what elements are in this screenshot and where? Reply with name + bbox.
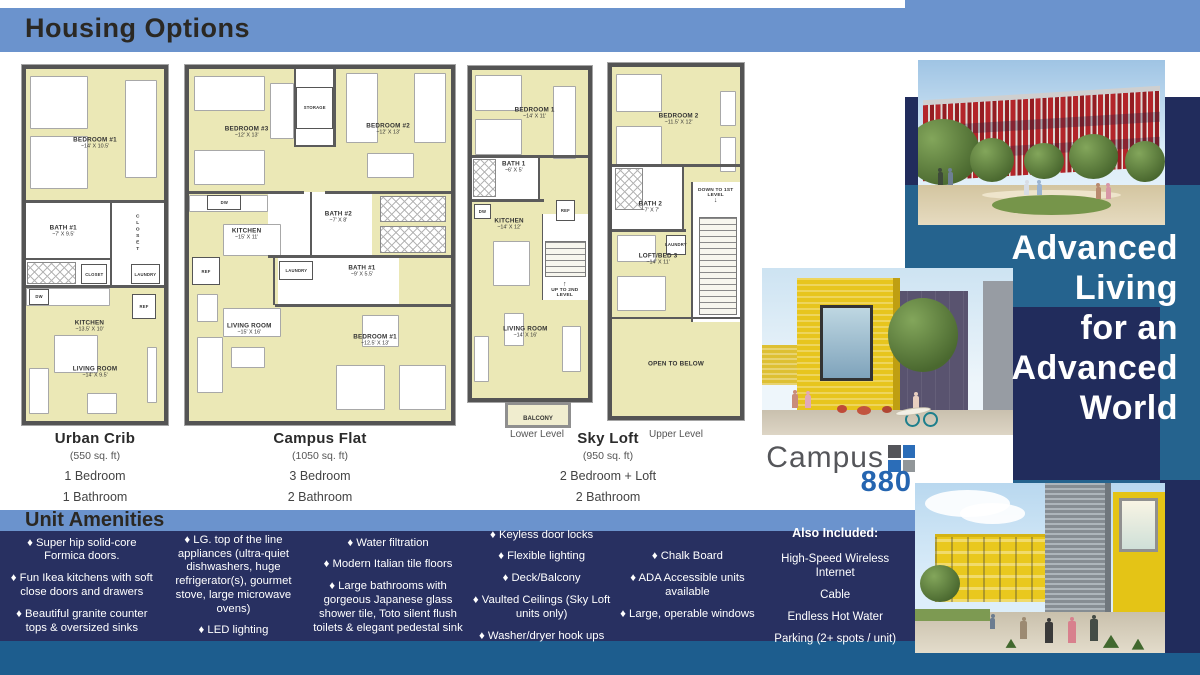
person <box>938 172 943 185</box>
level-label: Upper Level <box>649 429 703 440</box>
furniture <box>29 368 50 414</box>
room-name: OPEN TO BELOW <box>648 360 704 367</box>
person <box>1106 187 1111 199</box>
furniture <box>616 126 662 164</box>
furniture <box>616 74 662 112</box>
tree <box>1069 134 1118 179</box>
room-name: BEDROOM #1 <box>353 334 397 341</box>
amenity-item: ♦ Large, operable windows <box>618 608 756 622</box>
room-dimensions: ~14' X 10.5' <box>73 143 117 149</box>
plan-spec: 3 Bedroom <box>220 469 420 483</box>
amenity-item: ♦ Keyless door locks <box>471 529 613 543</box>
room-name: KITCHEN <box>494 218 523 225</box>
room-label: BEDROOM 2~11.5' X 12' <box>659 113 699 126</box>
room-dimensions: ~7' X 9.5' <box>50 231 77 237</box>
shower <box>27 262 75 284</box>
furniture <box>553 86 576 158</box>
photo-red-building <box>918 60 1165 225</box>
person <box>1024 184 1029 195</box>
room-label: KITCHEN~13.5' X 10' <box>75 319 104 332</box>
room-name: BEDROOM 1 <box>515 106 555 113</box>
room-label: KITCHEN~15' X 11' <box>232 228 261 241</box>
glass-window <box>820 305 874 381</box>
room-dimensions: ~15' X 11' <box>232 235 261 241</box>
plan-caption: Sky Loft(950 sq. ft)2 Bedroom + Loft2 Ba… <box>508 430 708 504</box>
room-name: KITCHEN <box>75 319 104 326</box>
right-edge-navy-block <box>1160 480 1200 653</box>
floor-plan-urban-crib: DWREFLAUNDRYCLOSETBEDROOM #1~14' X 10.5'… <box>22 65 168 425</box>
amenity-item: ♦ Large bathrooms with gorgeous Japanese… <box>311 580 464 635</box>
fixture-ref: REF <box>192 257 221 285</box>
room-dimensions: ~14' X 11' <box>515 113 555 119</box>
person <box>990 618 995 629</box>
wall <box>189 191 304 194</box>
furniture <box>30 76 88 129</box>
wall <box>275 304 451 307</box>
room-dimensions: ~14' X 9.5' <box>73 372 118 378</box>
logo-number: 880 <box>818 466 912 499</box>
room-label: OPEN TO BELOW <box>648 360 704 367</box>
amenity-item: ♦ LG. top of the line appliances (ultra-… <box>162 534 306 617</box>
fixture-laundry: LAUNDRY <box>279 261 313 280</box>
shower <box>380 196 446 223</box>
tagline-line: for an <box>910 308 1178 348</box>
room-name: BATH 1 <box>502 160 525 167</box>
room-dimensions: ~12.5' X 13' <box>353 341 397 347</box>
room-area <box>268 192 373 255</box>
amenity-item: ♦ Modern Italian tile floors <box>311 558 464 572</box>
fixture-dw: DW <box>207 195 241 211</box>
plan-spec: 1 Bedroom <box>0 469 195 483</box>
wall <box>273 256 276 305</box>
room-dimensions: ~11.5' X 12' <box>659 120 699 126</box>
wall <box>612 317 740 319</box>
fixture-laundry: LAUNDRY <box>131 264 160 283</box>
also-included-item: Parking (2+ spots / unit) <box>762 632 908 646</box>
plan-name: Campus Flat <box>220 430 420 447</box>
person <box>1096 187 1101 199</box>
also-included-title: Also Included: <box>762 526 908 541</box>
person <box>805 395 811 408</box>
page-title: Housing Options <box>25 13 250 44</box>
louver-tower <box>1045 483 1111 616</box>
tree <box>920 565 960 602</box>
stairs <box>699 217 737 315</box>
person <box>1020 621 1027 639</box>
wall <box>612 229 686 232</box>
room-dimensions: ~12' X 13' <box>225 133 269 139</box>
amenities-column: ♦ Super hip solid-core Formica doors.♦ F… <box>8 531 156 641</box>
room-label: BATH #1~7' X 9.5' <box>50 224 77 237</box>
plan-name: Urban Crib <box>0 430 195 447</box>
brochure-page: { "header": { "title": "Housing Options"… <box>0 0 1200 675</box>
right-white-patch <box>905 435 1013 483</box>
room-dimensions: ~7' X 7' <box>639 207 662 213</box>
photo-campus-walkway <box>915 483 1165 653</box>
amenity-item: ♦ Flexible lighting <box>471 550 613 564</box>
person <box>948 172 953 185</box>
amenities-column: ♦ Chalk Board♦ ADA Accessible units avai… <box>618 531 756 641</box>
tagline-line: World <box>910 388 1178 428</box>
room-name: KITCHEN <box>232 228 261 235</box>
room-dimensions: ~9' X 5.5' <box>348 272 375 278</box>
room-label: LIVING ROOM~14' X 9.5' <box>73 365 118 378</box>
room-label: LOFT/BED 3~14' X 11' <box>639 252 678 265</box>
plan-spec: 2 Bathroom <box>220 490 420 504</box>
room-label: BEDROOM #3~12' X 13' <box>225 126 269 139</box>
furniture <box>493 241 530 287</box>
tagline-line: Advanced <box>910 348 1178 388</box>
room-name: LIVING ROOM <box>227 323 272 330</box>
person <box>1045 622 1053 643</box>
amenity-item: ♦ Beautiful granite counter tops & overs… <box>8 608 156 636</box>
wall <box>325 191 451 194</box>
floor-plan-sky-loft-upper: LAUNDRYBEDROOM 2~11.5' X 12'BATH 2~7' X … <box>608 63 744 420</box>
room-label: BEDROOM #2~12' X 13' <box>366 122 410 135</box>
logo-square <box>888 445 901 458</box>
plan-spec: 1 Bathroom <box>0 490 195 504</box>
room-label: KITCHEN~14' X 12' <box>494 218 523 231</box>
floor-plan-campus-flat: STORAGEDWREFLAUNDRYBEDROOM #3~12' X 13'B… <box>185 65 455 425</box>
room-label: LIVING ROOM~14' X 16' <box>503 326 548 339</box>
amenity-item: ♦ Chalk Board <box>618 550 756 564</box>
amenities-column: ♦ LG. top of the line appliances (ultra-… <box>162 531 306 641</box>
furniture <box>336 365 386 411</box>
fixture-storage: STORAGE <box>296 87 333 129</box>
plan-caption: Campus Flat(1050 sq. ft)3 Bedroom2 Bathr… <box>220 430 420 504</box>
wall <box>26 285 164 288</box>
wall <box>682 166 684 229</box>
wall <box>472 199 544 202</box>
room-name: BATH #2 <box>325 210 352 217</box>
wall <box>691 182 692 322</box>
plan-caption: Urban Crib(550 sq. ft)1 Bedroom1 Bathroo… <box>0 430 195 504</box>
room-label: BEDROOM #1~12.5' X 13' <box>353 334 397 347</box>
room-dimensions: ~7' X 8' <box>325 217 352 223</box>
room-label: ↑UP TO 2ND LEVEL <box>547 282 583 298</box>
tagline-line: Advanced <box>910 228 1178 268</box>
amenity-item: ♦ LED lighting <box>162 624 306 638</box>
furniture <box>231 347 265 368</box>
room-dimensions: ~6' X 5' <box>502 167 525 173</box>
plan-spec: 2 Bedroom + Loft <box>508 469 708 483</box>
amenity-item: ♦ Deck/Balcony <box>471 572 613 586</box>
furniture <box>475 119 521 155</box>
room-dimensions: ~14' X 11' <box>639 259 678 265</box>
fixture-dw: DW <box>29 289 50 305</box>
wall <box>542 214 543 299</box>
person <box>792 394 798 408</box>
tree <box>970 138 1014 183</box>
plan-spec: 2 Bathroom <box>508 490 708 504</box>
wall <box>472 155 588 158</box>
lawn <box>915 609 990 621</box>
room-label: LIVING ROOM~15' X 16' <box>227 323 272 336</box>
room-name: BEDROOM #2 <box>366 122 410 129</box>
plan-sqft: (550 sq. ft) <box>0 450 195 462</box>
room-dimensions: ~14' X 12' <box>494 225 523 231</box>
room-name: BATH #1 <box>50 224 77 231</box>
room-label: BATH #2~7' X 8' <box>325 210 352 223</box>
furniture <box>474 336 489 382</box>
top-margin <box>0 0 905 8</box>
furniture <box>87 393 117 414</box>
room-name: LOFT/BED 3 <box>639 252 678 259</box>
furniture <box>399 365 446 411</box>
room-name: UP TO 2ND LEVEL <box>547 288 583 298</box>
furniture <box>197 294 218 322</box>
room-label: DOWN TO 1ST LEVEL↓ <box>698 188 734 204</box>
also-included-item: Cable <box>762 588 908 602</box>
cloud <box>960 503 1025 523</box>
amenity-item: ♦ Vaulted Ceilings (Sky Loft units only) <box>471 594 613 622</box>
person <box>1090 619 1098 641</box>
wall <box>26 200 164 203</box>
plan-sqft: (950 sq. ft) <box>508 450 708 462</box>
room-label: BEDROOM #1~14' X 10.5' <box>73 136 117 149</box>
amenity-item: ♦ Fun Ikea kitchens with soft close door… <box>8 572 156 600</box>
room-name: LIVING ROOM <box>73 365 118 372</box>
room-name: BATH 2 <box>639 200 662 207</box>
also-included-item: Endless Hot Water <box>762 610 908 624</box>
wall <box>268 255 451 258</box>
fixture-closet: CLOSET <box>81 264 107 283</box>
balcony: BALCONY <box>505 402 571 428</box>
furniture <box>194 76 265 111</box>
lawn <box>992 195 1111 215</box>
room-name: BEDROOM 2 <box>659 113 699 120</box>
amenity-item: ♦ Super hip solid-core Formica doors. <box>8 537 156 565</box>
furniture <box>562 326 581 372</box>
room-label: BEDROOM 1~14' X 11' <box>515 106 555 119</box>
shower <box>473 159 496 197</box>
amenities-column: ♦ Keyless door locks♦ Flexible lighting♦… <box>471 531 613 641</box>
wall <box>333 69 336 146</box>
also-included-column: Also Included:High-Speed Wireless Intern… <box>762 531 908 641</box>
level-label: Lower Level <box>510 429 564 440</box>
wall <box>110 203 111 287</box>
floor-plan-sky-loft-lower: REFDWBEDROOM 1~14' X 11'BATH 1~6' X 5'KI… <box>468 66 592 402</box>
room-dimensions: ~15' X 16' <box>227 330 272 336</box>
room-dimensions: ~12' X 13' <box>366 129 410 135</box>
wall-window <box>1119 498 1158 552</box>
person <box>1068 621 1076 643</box>
amenity-item: ♦ ADA Accessible units available <box>618 572 756 600</box>
furniture <box>270 83 294 139</box>
room-label: BATH #1~9' X 5.5' <box>348 265 375 278</box>
furniture <box>125 80 157 179</box>
shower <box>380 226 446 253</box>
tagline-line: Living <box>910 268 1178 308</box>
furniture <box>720 91 737 126</box>
room-label-vertical: CLOSET <box>135 215 140 254</box>
fixture-ref: REF <box>556 200 576 221</box>
wall <box>294 145 336 148</box>
amenities-columns: ♦ Super hip solid-core Formica doors.♦ F… <box>8 531 908 641</box>
wall <box>26 258 110 260</box>
room-name: BEDROOM #1 <box>73 136 117 143</box>
furniture <box>194 150 265 185</box>
amenities-column: ♦ Water filtration♦ Modern Italian tile … <box>311 531 464 641</box>
wall <box>538 157 539 200</box>
plan-sqft: (1050 sq. ft) <box>220 450 420 462</box>
room-label: BATH 1~6' X 5' <box>502 160 525 173</box>
tree <box>1125 141 1165 182</box>
room-dimensions: ~14' X 16' <box>503 333 548 339</box>
tree <box>1024 143 1064 179</box>
tagline: AdvancedLivingfor anAdvancedWorld <box>910 228 1178 428</box>
amenity-item: ♦ Water filtration <box>311 537 464 551</box>
furniture <box>414 73 445 143</box>
wall <box>612 164 740 167</box>
stairs <box>545 241 586 277</box>
room-name: LIVING ROOM <box>503 326 548 333</box>
amenity-item: ♦ Washer/dryer hook ups <box>471 630 613 644</box>
direction-arrow-icon: ↓ <box>698 198 734 204</box>
furniture <box>367 153 414 178</box>
room-name: BEDROOM #3 <box>225 126 269 133</box>
wall <box>310 192 313 255</box>
room-label: BATH 2~7' X 7' <box>639 200 662 213</box>
furniture <box>147 347 157 403</box>
amenities-title: Unit Amenities <box>25 509 164 531</box>
room-name: BATH #1 <box>348 265 375 272</box>
fixture-dw: DW <box>474 204 490 219</box>
furniture <box>617 276 666 311</box>
person <box>1037 184 1042 195</box>
logo-square <box>903 445 916 458</box>
furniture <box>197 337 223 393</box>
room-dimensions: ~13.5' X 10' <box>75 326 104 332</box>
also-included-item: High-Speed Wireless Internet <box>762 552 908 580</box>
fixture-ref: REF <box>132 294 155 319</box>
